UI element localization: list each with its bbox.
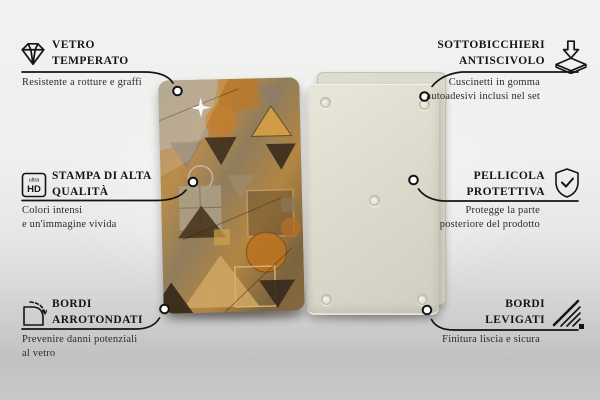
subtitle-line: Prevenire danni potenziali [22, 333, 137, 347]
callout-title-bordi-arrotondati: BORDI ARROTONDATI [52, 297, 143, 328]
callout-title-stampa-qualita: STAMPA DI ALTA QUALITÀ [52, 169, 152, 200]
product-infographic: VETRO TEMPERATO Resistente a rotture e g… [0, 0, 600, 400]
title-line: TEMPERATO [52, 54, 129, 70]
callout-title-vetro-temperato: VETRO TEMPERATO [52, 38, 129, 69]
title-line: SOTTOBICCHIERI [437, 38, 545, 54]
ultra-hd-icon: ultra HD [21, 172, 47, 198]
svg-text:ultra: ultra [29, 178, 41, 184]
subtitle-line: Protegge la parte [440, 204, 540, 218]
subtitle-line: Cuscinetti in gomma [426, 76, 540, 90]
callout-title-sottobicchieri: SOTTOBICCHIERI ANTISCIVOLO [437, 38, 545, 69]
callout-subtitle-stampa-qualita: Colori intensi e un'immagine vivida [22, 204, 117, 231]
rounded-corner-icon [19, 299, 47, 327]
edge-hatch-icon [551, 297, 585, 329]
title-line: PROTETTIVA [466, 185, 545, 201]
abstract-pattern-art [158, 77, 305, 313]
callout-subtitle-vetro-temperato: Resistente a rotture e graffi [22, 76, 142, 90]
title-line: BORDI [485, 297, 545, 313]
callout-subtitle-bordi-levigati: Finitura liscia e sicura [442, 333, 540, 347]
callout-subtitle-bordi-arrotondati: Prevenire danni potenziali al vetro [22, 333, 137, 360]
rubber-pad [369, 195, 380, 206]
callout-subtitle-sottobicchieri: Cuscinetti in gomma autoadesivi inclusi … [426, 76, 540, 103]
subtitle-line: al vetro [22, 347, 137, 361]
subtitle-line: autoadesivi inclusi nel set [426, 90, 540, 104]
title-line: STAMPA DI ALTA [52, 169, 152, 185]
rubber-pad [417, 294, 428, 305]
title-line: BORDI [52, 297, 143, 313]
svg-text:HD: HD [27, 184, 41, 195]
coaster-arrow-icon [554, 38, 588, 74]
shield-check-icon [553, 167, 581, 199]
product-back-panel [307, 84, 439, 313]
rubber-pad [321, 294, 332, 305]
title-line: ANTISCIVOLO [437, 54, 545, 70]
subtitle-line: e un'immagine vivida [22, 218, 117, 232]
rubber-pad [320, 97, 331, 108]
diamond-icon [18, 41, 48, 67]
subtitle-line: posteriore del prodotto [440, 218, 540, 232]
title-line: ARROTONDATI [52, 313, 143, 329]
callout-title-bordi-levigati: BORDI LEVIGATI [485, 297, 545, 328]
title-line: VETRO [52, 38, 129, 54]
subtitle-line: Colori intensi [22, 204, 117, 218]
subtitle-line: Finitura liscia e sicura [442, 333, 540, 347]
callout-title-pellicola: PELLICOLA PROTETTIVA [466, 169, 545, 200]
subtitle-line: Resistente a rotture e graffi [22, 76, 142, 90]
title-line: PELLICOLA [466, 169, 545, 185]
title-line: LEVIGATI [485, 313, 545, 329]
callout-subtitle-pellicola: Protegge la parte posteriore del prodott… [440, 204, 540, 231]
product-front-panel [158, 77, 305, 313]
title-line: QUALITÀ [52, 185, 152, 201]
